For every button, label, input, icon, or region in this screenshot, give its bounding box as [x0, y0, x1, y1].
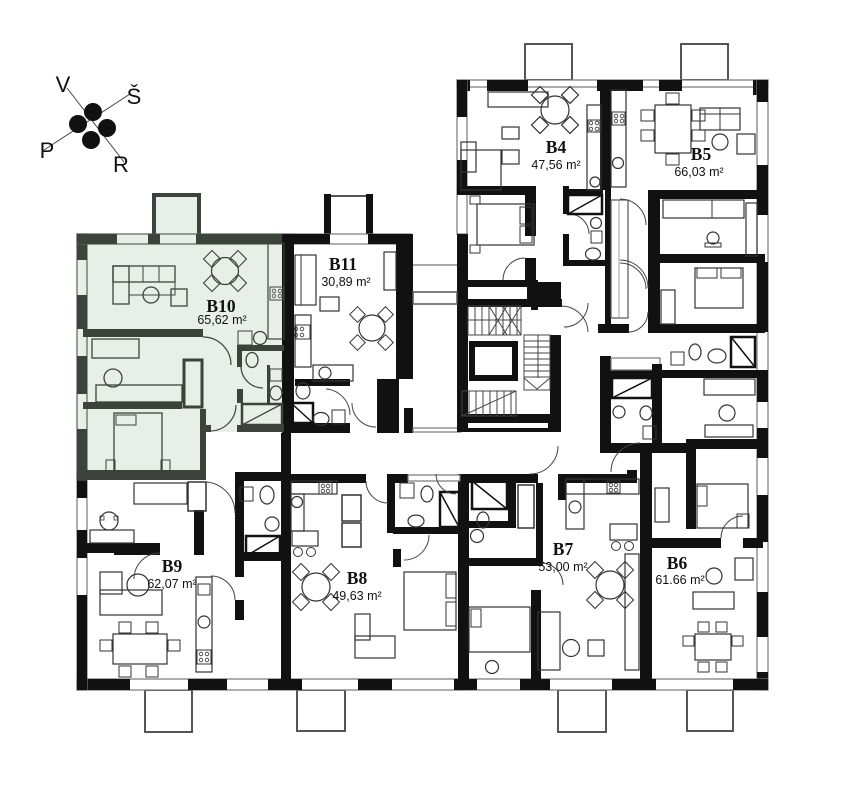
svg-text:R: R [113, 152, 129, 177]
svg-text:65,62 m²: 65,62 m² [197, 313, 246, 327]
svg-text:V: V [56, 72, 71, 97]
svg-text:62,07 m²: 62,07 m² [147, 577, 196, 591]
svg-text:Š: Š [127, 84, 142, 109]
svg-text:49,63 m²: 49,63 m² [332, 589, 381, 603]
svg-text:B5: B5 [691, 144, 712, 164]
svg-text:61.66 m²: 61.66 m² [655, 573, 704, 587]
svg-text:53,00 m²: 53,00 m² [538, 560, 587, 574]
svg-text:B8: B8 [347, 568, 368, 588]
svg-text:B9: B9 [162, 556, 183, 576]
svg-text:B11: B11 [329, 254, 357, 274]
svg-text:66,03 m²: 66,03 m² [674, 165, 723, 179]
svg-text:B7: B7 [553, 539, 574, 559]
svg-text:B4: B4 [546, 137, 567, 157]
svg-text:B6: B6 [667, 553, 688, 573]
svg-text:47,56 m²: 47,56 m² [531, 158, 580, 172]
svg-text:P: P [40, 138, 55, 163]
svg-text:30,89 m²: 30,89 m² [321, 275, 370, 289]
